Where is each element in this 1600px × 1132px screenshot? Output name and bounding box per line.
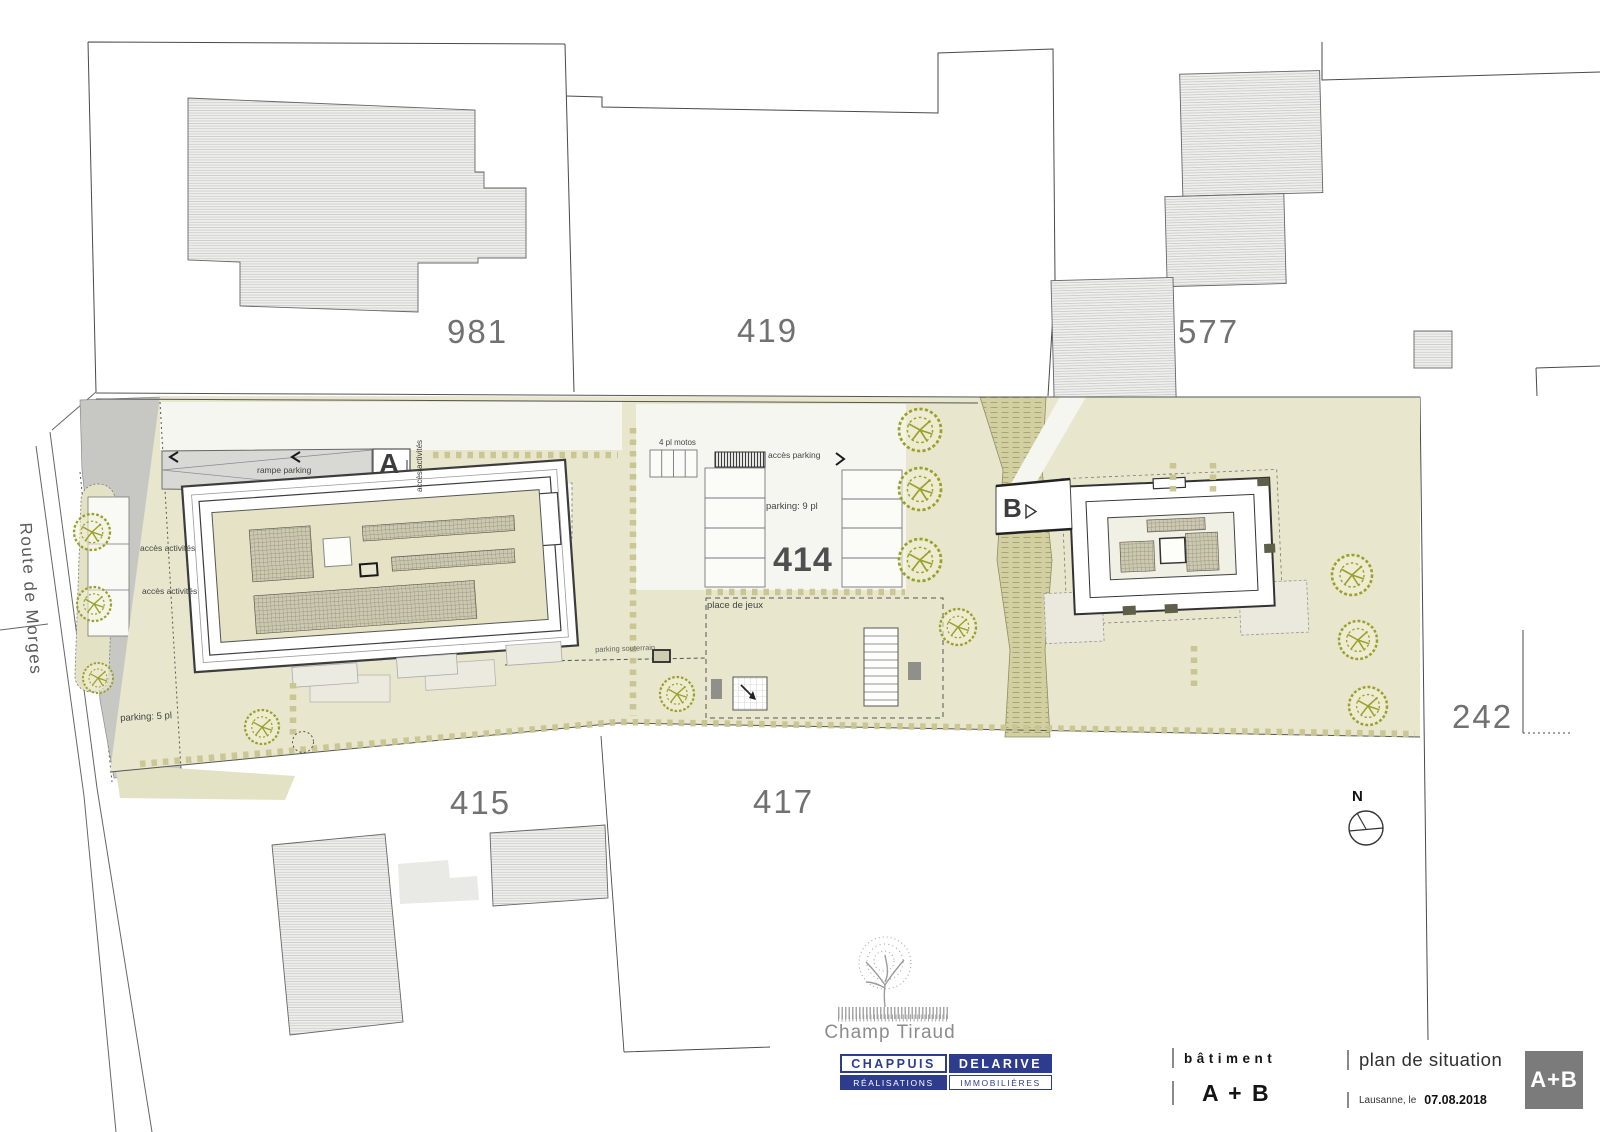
company-name-left: CHAPPUIS <box>840 1054 947 1073</box>
parcel-label-415: 415 <box>450 786 511 819</box>
parcel-label-981: 981 <box>447 315 508 348</box>
building-a <box>182 460 580 694</box>
bench <box>908 662 921 680</box>
date-value: 07.08.2018 <box>1424 1093 1487 1107</box>
company-logo: CHAPPUIS DELARIVE RÉALISATIONS IMMOBILIÈ… <box>840 1054 1052 1090</box>
titleblock-building: bâtiment A + B <box>1172 1046 1276 1110</box>
company-sub-right: IMMOBILIÈRES <box>949 1075 1052 1090</box>
parking-souterrain-label: parking souterrain <box>595 644 655 654</box>
parcel-label-417: 417 <box>753 785 814 818</box>
building-value: A + B <box>1202 1080 1271 1107</box>
building-label: bâtiment <box>1184 1051 1276 1066</box>
divider <box>1172 1081 1174 1105</box>
titleblock-drawing: plan de situation Lausanne, le 07.08.201… <box>1347 1048 1502 1110</box>
acces-activites-label: accès activités <box>142 587 197 596</box>
parking-9pl-label: parking: 9 pl <box>766 502 818 512</box>
stall-column-east <box>842 470 902 587</box>
building-b-mark: B <box>1003 495 1022 521</box>
solar-panels <box>1147 518 1205 533</box>
company-sub-left: RÉALISATIONS <box>840 1075 947 1090</box>
acces-activites-vertical-label: accès activités <box>416 440 424 492</box>
annex-parcel-415 <box>398 860 479 904</box>
acces-parking-label: accès parking <box>768 451 820 460</box>
building-a-mark: A <box>379 450 399 478</box>
roof-hatch <box>360 563 378 576</box>
play-structure <box>864 628 898 706</box>
parking-5pl-label: parking: 5 pl <box>120 711 172 723</box>
stall-column-west <box>705 468 765 587</box>
place-date-label: Lausanne, le <box>1359 1095 1416 1106</box>
bench <box>711 679 722 699</box>
divider <box>1347 1050 1349 1070</box>
parcel-label-414: 414 <box>773 543 833 577</box>
champ-tiraud-logo-icon <box>838 937 948 1018</box>
ab-logo-badge: A+B <box>1525 1051 1583 1109</box>
parcel-label-419: 419 <box>737 314 798 347</box>
north-label: N <box>1352 789 1363 804</box>
north-arrow-icon <box>1349 811 1383 845</box>
moto-stalls-label: 4 pl motos <box>659 439 696 447</box>
skylight <box>323 537 352 567</box>
drawing-title: plan de situation <box>1359 1049 1502 1071</box>
solar-panels <box>1185 532 1219 571</box>
solar-panels <box>249 526 313 582</box>
covered-stalls-hatch <box>715 452 765 467</box>
entrance-canopy <box>1153 477 1185 488</box>
place-de-jeux-label: place de jeux <box>707 601 763 611</box>
acces-activites-label: accès activités <box>140 544 195 553</box>
solar-panels <box>1120 541 1155 572</box>
small-building-ne <box>1414 331 1452 368</box>
divider <box>1347 1092 1349 1108</box>
building-parcel-415-east <box>490 825 608 906</box>
building-parcel-981 <box>188 98 526 312</box>
skylight <box>1160 537 1186 563</box>
parcel-label-242: 242 <box>1452 700 1513 733</box>
parcel-label-577: 577 <box>1178 315 1239 348</box>
building-parcel-415-west <box>272 834 403 1035</box>
divider <box>1172 1048 1174 1068</box>
rampe-parking-label: rampe parking <box>257 466 311 475</box>
project-logo-name: Champ Tiraud <box>800 1022 980 1044</box>
site-plan-page: Route de Morges 981 419 577 414 415 417 … <box>0 0 1600 1132</box>
company-name-right: DELARIVE <box>949 1054 1052 1073</box>
buildings-parcel-577 <box>1046 71 1329 414</box>
